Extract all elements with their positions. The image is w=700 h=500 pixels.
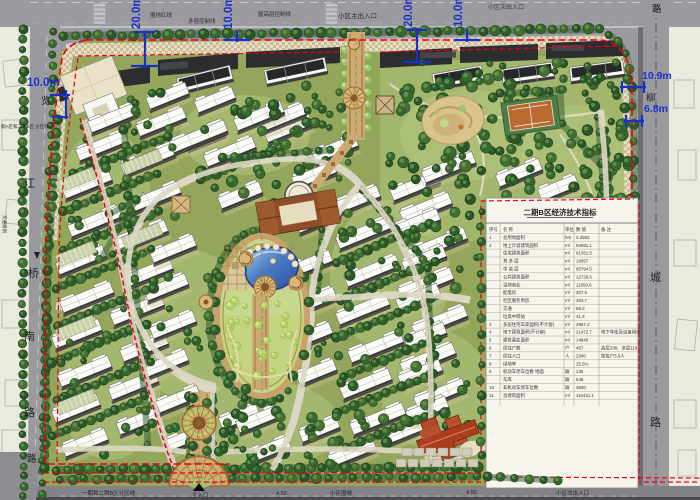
svg-text:20.0m: 20.0m	[403, 0, 415, 27]
svg-text:数 值: 数 值	[576, 226, 587, 233]
svg-text:m²: m²	[565, 251, 571, 256]
svg-text:机动车停车位数 地面: 机动车停车位数 地面	[503, 368, 544, 375]
svg-text:居住人口: 居住人口	[503, 352, 521, 359]
svg-text:城: 城	[650, 271, 661, 284]
svg-text:多层控制线: 多层控制线	[188, 17, 216, 25]
svg-text:10.0m: 10.0m	[453, 0, 465, 27]
svg-text:m²: m²	[565, 290, 571, 295]
svg-text:辆: 辆	[565, 376, 570, 383]
svg-text:柳: 柳	[646, 92, 656, 104]
svg-text:10.0m: 10.0m	[223, 0, 235, 29]
svg-text:65794.5: 65794.5	[576, 267, 592, 272]
svg-text:2300: 2300	[576, 353, 586, 358]
svg-text:m²: m²	[565, 322, 571, 327]
svg-text:备 注: 备 注	[601, 226, 612, 233]
svg-text:546: 546	[576, 377, 584, 382]
svg-text:南: 南	[24, 330, 35, 343]
svg-text:10: 10	[489, 385, 494, 390]
svg-text:建筑基底面积: 建筑基底面积	[503, 337, 530, 344]
svg-text:4.4583: 4.4583	[576, 235, 590, 240]
svg-text:25.5%: 25.5%	[576, 361, 589, 366]
svg-text:桥: 桥	[28, 267, 39, 280]
svg-text:览: 览	[41, 95, 51, 107]
svg-text:m²: m²	[565, 267, 571, 272]
svg-text:江: 江	[24, 177, 35, 190]
svg-text:4.50: 4.50	[276, 491, 287, 497]
svg-text:总用地面积: 总用地面积	[503, 234, 526, 241]
svg-text:交通规划: 交通规划	[1, 215, 8, 233]
svg-text:屋高层控制线: 屋高层控制线	[258, 10, 292, 18]
svg-text:m²: m²	[565, 306, 571, 311]
svg-text:6.8m: 6.8m	[644, 103, 668, 115]
svg-text:户: 户	[565, 345, 569, 352]
svg-text:10.0m: 10.0m	[27, 77, 60, 89]
svg-text:307.5: 307.5	[576, 290, 588, 295]
svg-text:小区次出入口: 小区次出入口	[556, 489, 589, 497]
svg-text:20.0m: 20.0m	[131, 0, 143, 29]
svg-text:其 多 层: 其 多 层	[503, 258, 519, 265]
svg-text:m²: m²	[565, 393, 571, 398]
svg-text:温地商业: 温地商业	[503, 281, 521, 288]
svg-text:总建筑面积: 总建筑面积	[503, 392, 526, 399]
svg-text:绿地率: 绿地率	[503, 360, 517, 367]
svg-text:m²: m²	[565, 338, 571, 343]
svg-text:m²: m²	[565, 259, 571, 264]
svg-text:21472.7: 21472.7	[576, 330, 592, 335]
svg-text:中 高 层: 中 高 层	[503, 266, 519, 273]
svg-text:交通: 交通	[503, 305, 512, 312]
svg-text:3500: 3500	[576, 385, 586, 390]
svg-text:路: 路	[24, 406, 35, 419]
svg-text:居住户数: 居住户数	[503, 345, 521, 352]
svg-text:垃圾中转站: 垃圾中转站	[503, 313, 526, 320]
svg-text:353.7: 353.7	[576, 298, 588, 303]
svg-text:高层338、多层119: 高层338、多层119	[601, 345, 638, 352]
svg-text:二期B区经济技术指标: 二期B区经济技术指标	[524, 207, 597, 217]
svg-text:路: 路	[650, 416, 661, 429]
svg-text:人: 人	[565, 353, 570, 358]
svg-text:主入口: 主入口	[192, 491, 209, 499]
svg-text:辆: 辆	[565, 384, 570, 391]
svg-text:69.3: 69.3	[576, 306, 585, 311]
svg-text:辆: 辆	[565, 368, 570, 375]
svg-text:序号: 序号	[489, 226, 498, 233]
svg-text:81351.5: 81351.5	[576, 251, 592, 256]
svg-text:地下建筑面积(不计容): 地下建筑面积(不计容)	[503, 329, 546, 336]
svg-text:地下车库及设备用房: 地下车库及设备用房	[601, 329, 641, 336]
svg-text:m²: m²	[565, 314, 571, 319]
svg-text:110431.1: 110431.1	[576, 393, 595, 398]
svg-text:2967.2: 2967.2	[576, 322, 590, 327]
svg-text:地上计容建筑面积: 地上计容建筑面积	[503, 242, 539, 249]
svg-text:11950.6: 11950.6	[576, 282, 592, 287]
svg-text:41.3: 41.3	[576, 314, 585, 319]
svg-text:小区主出入口: 小区主出入口	[338, 11, 377, 20]
svg-text:12726.6: 12726.6	[576, 274, 592, 279]
svg-text:按每户3.5人: 按每户3.5人	[601, 352, 625, 359]
svg-text:路: 路	[652, 3, 662, 15]
svg-text:94081.1: 94081.1	[576, 243, 592, 248]
svg-text:公共建筑面积: 公共建筑面积	[503, 273, 530, 280]
svg-text:非机动车停车位数: 非机动车停车位数	[503, 384, 539, 391]
svg-text:路: 路	[27, 453, 37, 465]
svg-text:m²: m²	[565, 282, 571, 287]
svg-text:4.50: 4.50	[466, 490, 477, 496]
svg-text:m²: m²	[565, 274, 571, 279]
svg-text:11: 11	[489, 393, 494, 398]
svg-text:14840: 14840	[576, 338, 589, 343]
svg-text:一期和二期B区分区线: 一期和二期B区分区线	[82, 489, 136, 497]
svg-text:hm: hm	[565, 235, 571, 240]
svg-text:小区次出入口: 小区次出入口	[488, 3, 524, 11]
svg-text:社区服务用房: 社区服务用房	[503, 297, 530, 304]
svg-text:配电房: 配电房	[503, 289, 517, 296]
svg-text:m²: m²	[565, 298, 571, 303]
svg-text:457: 457	[576, 346, 584, 351]
svg-text:小区围墙: 小区围墙	[330, 489, 353, 497]
svg-text:期A区和二期B区 分区线: 期A区和二期B区 分区线	[1, 123, 49, 130]
svg-text:围地红线: 围地红线	[150, 11, 173, 19]
svg-text:车库: 车库	[503, 376, 512, 383]
svg-text:10.9m: 10.9m	[642, 70, 672, 82]
svg-text:19057: 19057	[576, 259, 589, 264]
svg-text:住宅建筑面积: 住宅建筑面积	[503, 250, 530, 257]
svg-text:名 称: 名 称	[503, 226, 514, 233]
svg-text:多层住宅车库面积(不计容): 多层住宅车库面积(不计容)	[503, 321, 555, 328]
svg-text:单位: 单位	[565, 226, 574, 233]
svg-text:m²: m²	[565, 243, 571, 248]
svg-text:m²: m²	[565, 330, 571, 335]
svg-text:136: 136	[576, 369, 584, 374]
